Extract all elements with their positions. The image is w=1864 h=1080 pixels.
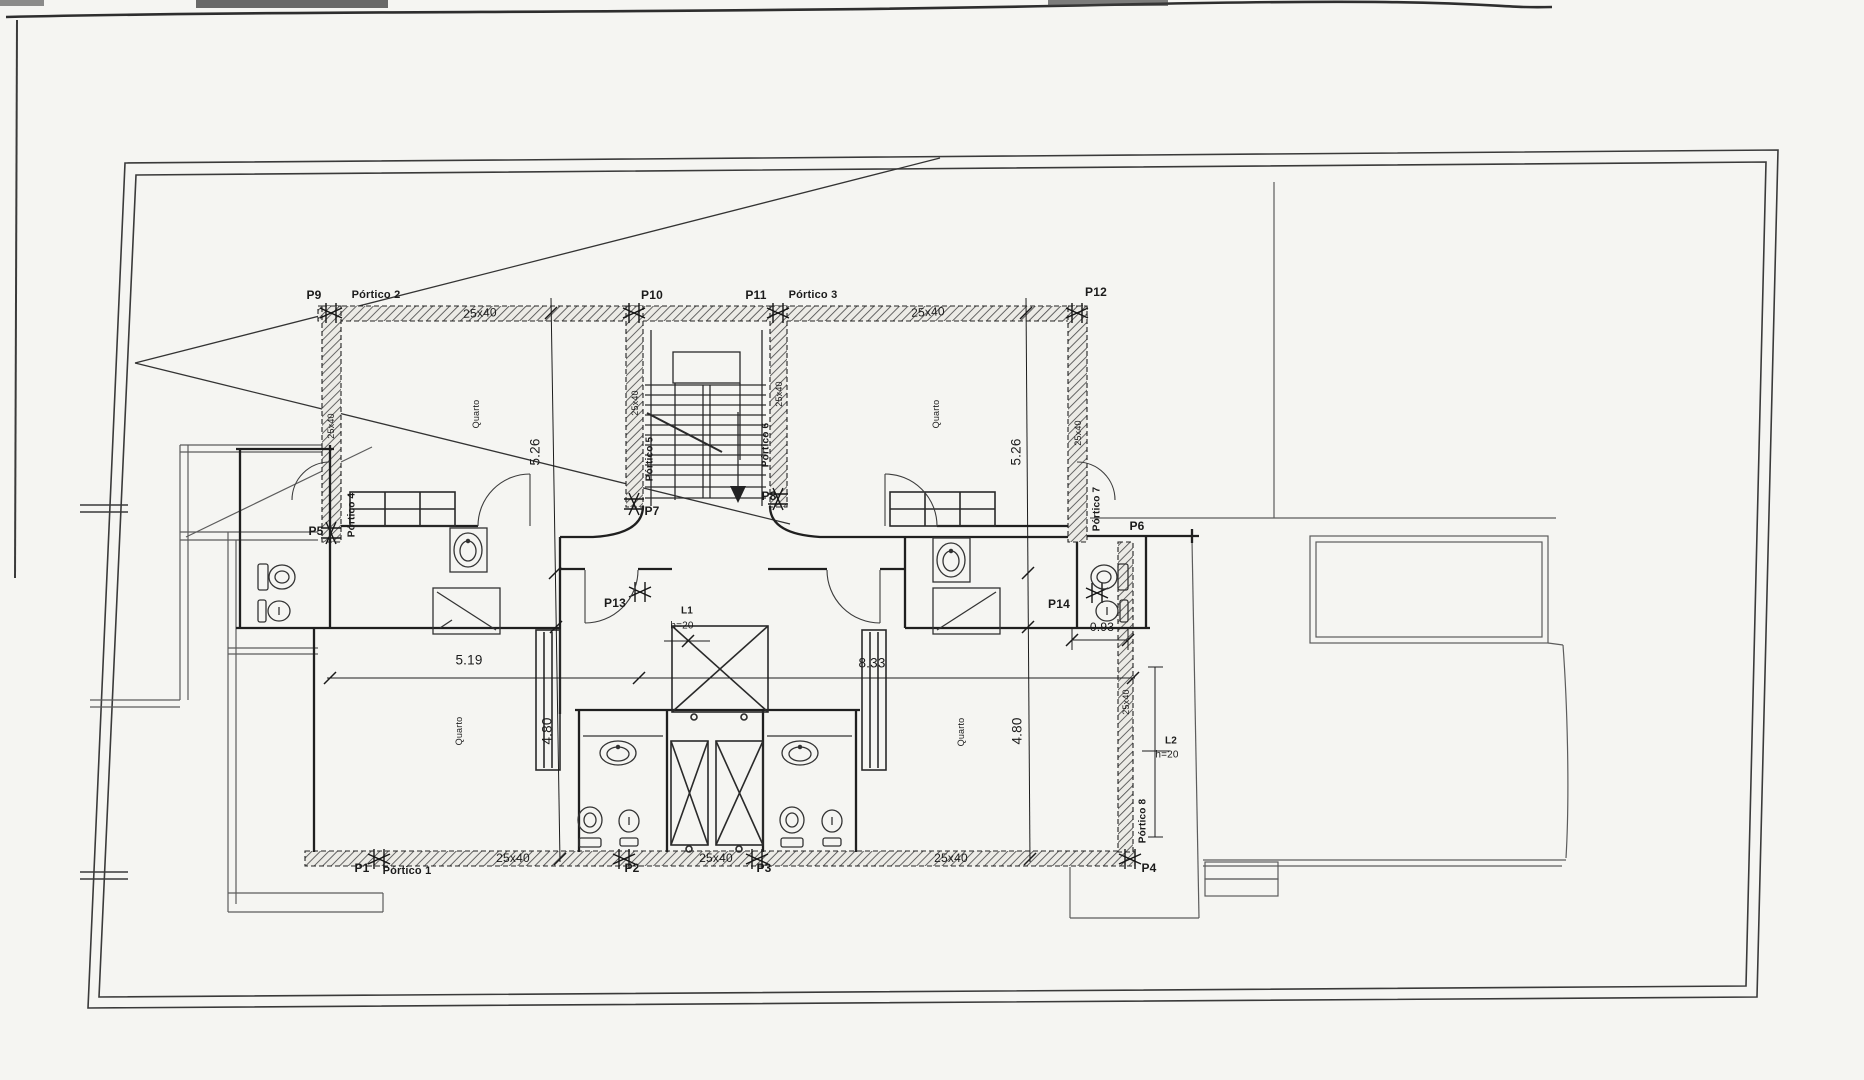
- bathroom-fixtures: [258, 528, 1128, 847]
- label-dim-8-33: 8.33: [858, 656, 885, 671]
- label-column-p9: P9: [306, 288, 321, 302]
- label-dim-5-26-left: 5.26: [528, 438, 543, 465]
- label-col-section-stair-left: 25x40: [630, 390, 640, 416]
- roof-lines: [135, 158, 940, 524]
- label-beam-25x40-bottom-mid: 25x40: [699, 851, 733, 865]
- label-dim-5-19: 5.19: [455, 653, 482, 668]
- label-column-p14: P14: [1048, 597, 1070, 611]
- label-portico-3: Pórtico 3: [789, 289, 838, 301]
- label-portico-1: Pórtico 1: [383, 865, 432, 877]
- label-portico-6: Pórtico 6: [761, 423, 772, 468]
- label-col-section-left: 25x40: [326, 413, 336, 439]
- label-beam-25x40-bottom-left: 25x40: [496, 851, 530, 865]
- label-dim-0-93: 0.93: [1090, 620, 1114, 634]
- label-col-section-right: 25x40: [1073, 420, 1083, 446]
- label-column-p10: P10: [641, 288, 663, 302]
- label-room-quarto-top-right: Quarto: [931, 400, 941, 429]
- label-portico-8: Pórtico 8: [1138, 799, 1149, 844]
- structural-beams: [305, 306, 1135, 866]
- label-column-p6: P6: [1129, 519, 1144, 533]
- label-col-section-stair-right: 25x40: [774, 381, 784, 407]
- label-beam-25x40-top-right: 25x40: [911, 304, 945, 320]
- label-column-p7: P7: [644, 504, 659, 518]
- label-column-p2: P2: [624, 861, 639, 875]
- label-portico-7: Pórtico 7: [1092, 487, 1103, 532]
- floor-plan-drawing: [0, 0, 1864, 1080]
- closets-and-shaft: [350, 492, 995, 852]
- label-portico-2: Pórtico 2: [352, 289, 401, 301]
- label-column-p8: P8: [761, 489, 776, 503]
- label-column-p1: P1: [354, 861, 369, 875]
- label-level-l1: L1: [681, 606, 693, 617]
- label-column-p4: P4: [1141, 861, 1156, 875]
- label-portico-5: Pórtico 5: [645, 437, 656, 482]
- label-beam-25x40-bottom-right: 25x40: [934, 851, 968, 865]
- label-beam-25x40-top-left: 25x40: [463, 305, 497, 321]
- floor-plan-page: P9 Pórtico 2 25x40 P10 P11 Pórtico 3 25x…: [0, 0, 1864, 1080]
- label-level-l1-height: h=20: [670, 621, 693, 632]
- label-level-l2: L2: [1165, 736, 1177, 747]
- column-markers: [320, 303, 1141, 869]
- label-column-p3: P3: [756, 861, 771, 875]
- label-column-p11: P11: [745, 288, 766, 302]
- label-dim-5-26-right: 5.26: [1009, 438, 1024, 465]
- site-boundary: [80, 150, 1778, 1008]
- label-dim-4-80-left: 4.80: [540, 717, 555, 744]
- label-room-quarto-bottom-right: Quarto: [956, 718, 966, 747]
- dimension-lines: [324, 298, 1170, 865]
- structural-columns: [322, 306, 1133, 852]
- label-dim-4-80-right: 4.80: [1010, 717, 1025, 744]
- label-col-section-bottom-right: 25x40: [1121, 689, 1131, 715]
- label-column-p5: P5: [308, 524, 323, 538]
- label-room-quarto-top-left: Quarto: [471, 400, 481, 429]
- label-portico-4: Pórtico 4: [347, 493, 358, 538]
- stairs: [645, 330, 766, 506]
- label-column-p13: P13: [604, 596, 626, 610]
- label-level-l2-height: h=20: [1155, 750, 1178, 761]
- label-column-p12: P12: [1085, 285, 1107, 299]
- label-room-quarto-bottom-left: Quarto: [454, 717, 464, 746]
